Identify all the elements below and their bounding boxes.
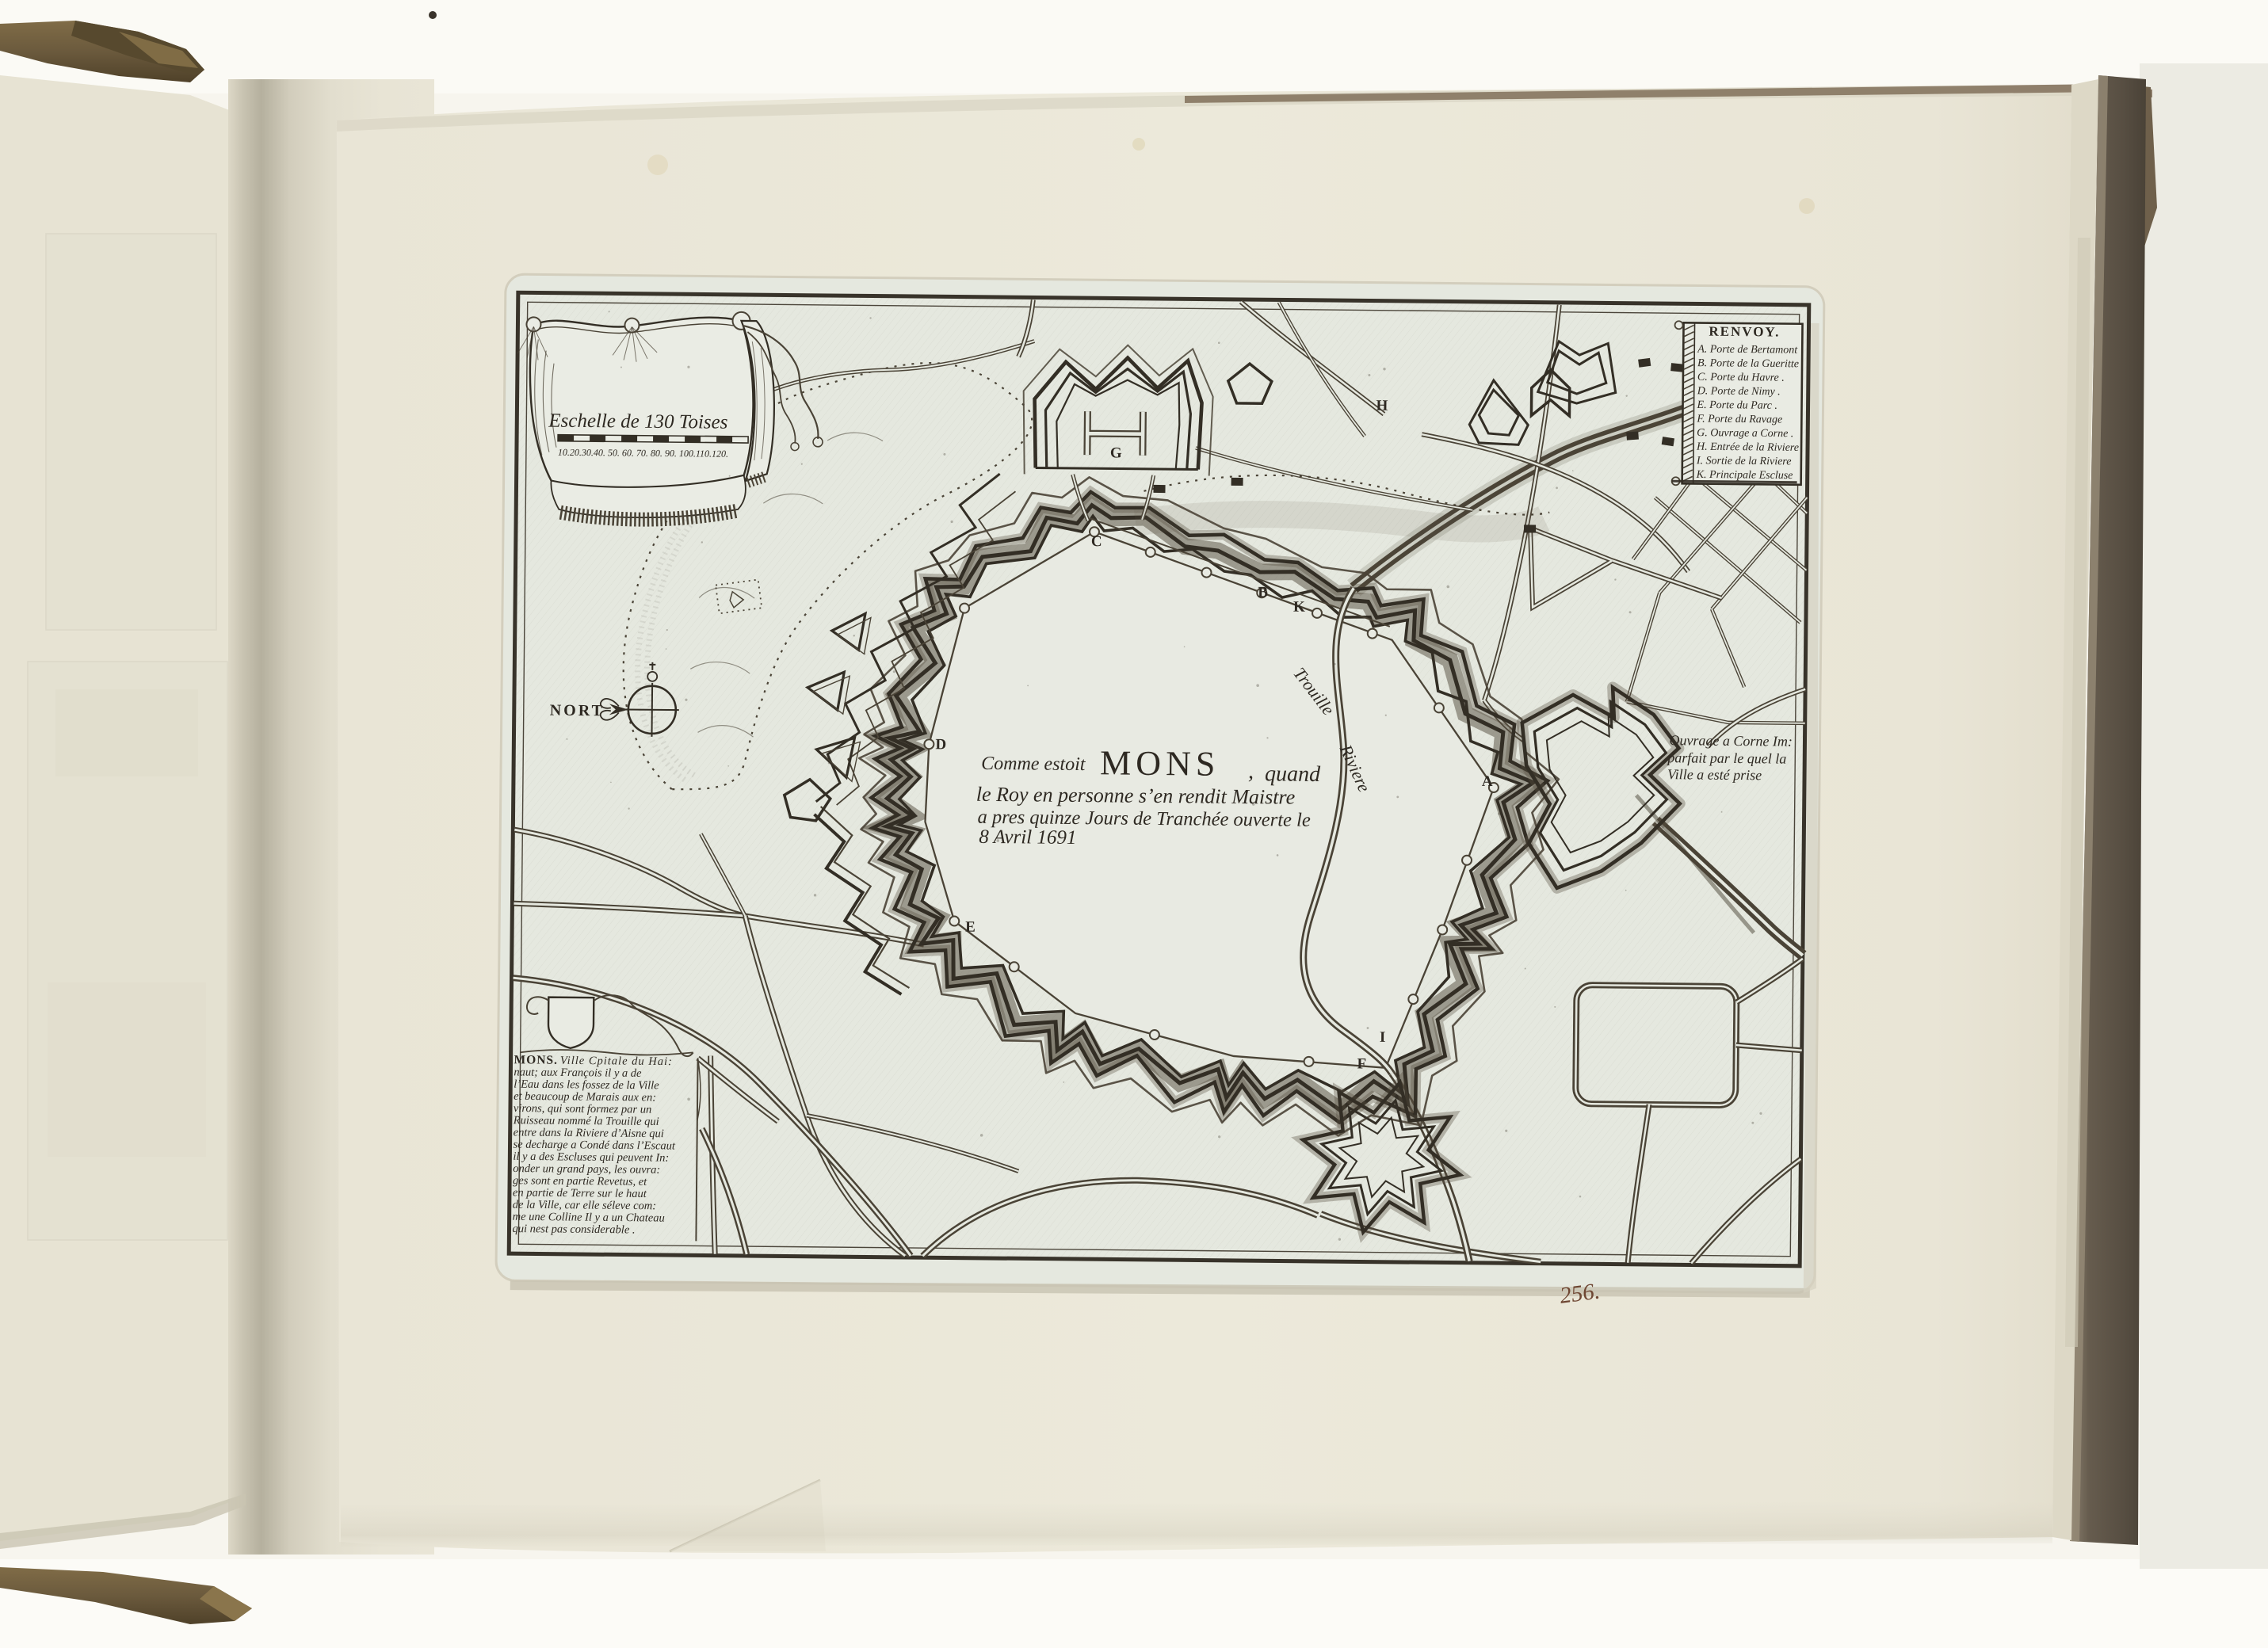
svg-text:I. Sortie de la Riviere: I. Sortie de la Riviere [1696,455,1792,467]
svg-text:E. Porte du Parc .: E. Porte du Parc . [1696,399,1777,412]
svg-text:K. Principale Escluse: K. Principale Escluse [1696,469,1793,482]
svg-text:H. Entrée de la Riviere: H. Entrée de la Riviere [1696,441,1799,454]
svg-text:G: G [1110,444,1122,461]
svg-text:G. Ouvrage a Corne .: G. Ouvrage a Corne . [1697,427,1793,440]
svg-text:K: K [1293,599,1305,616]
svg-text:10.20.30.40. 50. 60. 70. 80. 9: 10.20.30.40. 50. 60. 70. 80. 90. 100.110… [558,447,728,460]
svg-text:B: B [1258,584,1268,601]
svg-text:D: D [935,736,946,753]
svg-text:B. Porte de la Gueritte: B. Porte de la Gueritte [1697,357,1799,370]
svg-text:Ville a esté prise: Ville a esté prise [1667,766,1762,783]
svg-text:,: , [1248,759,1254,784]
svg-text:Ouvrage a Corne Im:: Ouvrage a Corne Im: [1669,732,1793,749]
svg-text:E: E [965,919,976,936]
svg-text:F: F [1357,1055,1366,1072]
svg-text:C. Porte du Havre .: C. Porte du Havre . [1697,372,1785,384]
svg-text:quand: quand [1265,761,1321,787]
svg-text:Eschelle de 130 Toises: Eschelle de 130 Toises [548,410,727,433]
svg-text:le Roy en personne s’en rendit: le Roy en personne s’en rendit Maistre [976,783,1296,809]
svg-text:qui nest pas considerable .: qui nest pas considerable . [512,1223,635,1236]
svg-text:256.: 256. [1558,1279,1601,1309]
svg-text:A: A [1482,773,1493,790]
svg-text:MONS: MONS [1100,743,1220,783]
svg-text:I: I [1380,1029,1386,1046]
svg-text:C: C [1091,533,1102,550]
svg-text:8 Avril 1691: 8 Avril 1691 [979,826,1076,849]
svg-text:RENVOY.: RENVOY. [1709,324,1780,340]
svg-text:F. Porte du Ravage: F. Porte du Ravage [1696,413,1782,425]
svg-text:Comme estoit: Comme estoit [981,753,1086,775]
svg-text:D. Porte de Nimy .: D. Porte de Nimy . [1697,385,1781,398]
svg-text:H: H [1376,398,1388,414]
svg-text:A. Porte de Bertamont: A. Porte de Bertamont [1697,343,1798,356]
svg-text:NORT: NORT [550,702,605,720]
svg-text:parfait par le quel la: parfait par le quel la [1666,750,1786,766]
